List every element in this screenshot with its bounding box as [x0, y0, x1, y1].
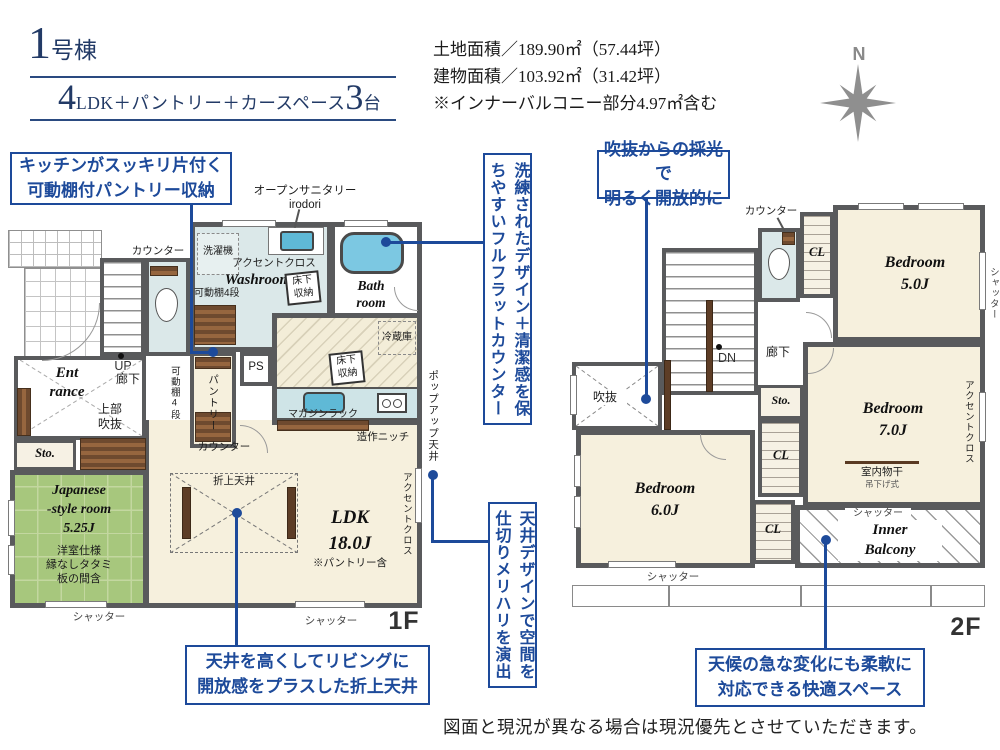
callout-dot-counter — [381, 237, 391, 247]
window — [344, 220, 388, 227]
bedroom7-label: Bedroom 7.0J — [838, 398, 948, 443]
disclaimer: 図面と現況が異なる場合は現況優先とさせていただきます。 — [443, 714, 999, 739]
bathroom-label: Bath room — [336, 278, 406, 312]
ceiling-beam-right — [287, 487, 296, 539]
stove-burner — [382, 399, 391, 408]
plan-ldk-count: 4 — [58, 79, 76, 115]
callout-line-counter — [390, 241, 483, 244]
callout-line-void — [645, 199, 648, 397]
stair-rail-right — [664, 360, 671, 430]
storage-label-1f: Sto. — [22, 446, 68, 462]
closet-top-label: CL — [802, 245, 832, 261]
building-title: 1 号棟 — [28, 20, 97, 66]
callout-ceiling-design: 天井デザインで空間を仕切りメリハリを演出 — [488, 502, 537, 688]
compass-star — [820, 64, 896, 142]
plan-car-count: 3 — [345, 79, 363, 115]
window — [858, 203, 904, 210]
stairs-1f — [100, 258, 145, 356]
callout-inner-balcony: 天候の急な変化にも柔軟に 対応できる快適スペース — [695, 648, 925, 707]
dn-dot — [716, 344, 722, 350]
storage-label-2f: Sto. — [763, 393, 799, 408]
roof-tick — [930, 585, 932, 607]
callout-dot-ceiling — [428, 470, 438, 480]
roof-tick — [668, 585, 670, 607]
callout-folded-ceiling: 天井を高くしてリビングに 開放感をプラスした折上天井 — [185, 645, 430, 705]
callout-void-light: 吹抜からの採光で 明るく開放的に — [597, 150, 730, 199]
bedroom5-label: Bedroom 5.0J — [860, 252, 970, 297]
indoor-drying-label: 室内物干 — [850, 466, 914, 479]
shutter-label-bedroom6: シャッター — [640, 571, 706, 584]
callout-line-pantry — [190, 205, 193, 353]
bedroom6-label: Bedroom 6.0J — [610, 478, 720, 523]
compass-north-label: N — [853, 44, 866, 64]
bedroom5-door-arc — [806, 312, 832, 338]
unit-number: 1 — [28, 20, 51, 66]
void-label: 吹抜 — [583, 390, 627, 405]
shutter-label-ldk: シャッター — [298, 615, 364, 628]
window — [574, 496, 581, 528]
floor2-label: 2F — [942, 612, 990, 643]
window — [574, 455, 581, 487]
magazine-rack-front — [277, 420, 369, 431]
folded-ceiling-label: 折上天井 — [204, 475, 264, 488]
magazine-rack-label: マガジンラック — [280, 409, 366, 422]
area-info: 土地面積／189.90㎡（57.44坪） 建物面積／103.92㎡（31.42坪… — [433, 36, 717, 117]
window — [979, 252, 986, 310]
entrance-label: Ent rance — [32, 364, 102, 402]
building-area: 建物面積／103.92㎡（31.42坪） — [433, 63, 717, 90]
window — [222, 220, 276, 227]
shutter-label-balcony: シャッター — [845, 508, 911, 521]
pantry-label: パントリー — [206, 368, 219, 438]
ldk-label: LDK 18.0J — [305, 505, 395, 556]
japanese-room-note: 洋室仕様 縁なしタタミ 板の間含 — [16, 545, 142, 586]
roof-tick — [800, 585, 802, 607]
window — [8, 500, 15, 536]
sanitary-sink — [280, 231, 314, 251]
closet-mid-label: CL — [766, 448, 796, 464]
bathtub — [340, 232, 404, 274]
callout-line-balcony — [824, 544, 827, 648]
compass-rose: N — [812, 36, 904, 148]
floorplan-page: 1 号棟 4 LDK＋パントリー＋カースペース 3 台 土地面積／189.90㎡… — [0, 0, 1000, 750]
title-divider-bottom — [30, 119, 396, 121]
drying-bar — [845, 461, 919, 464]
kitchen-stove — [377, 393, 407, 413]
callout-line-folded — [235, 517, 238, 645]
land-area: 土地面積／189.90㎡（57.44坪） — [433, 36, 717, 63]
ldk-note: ※パントリー含 — [298, 557, 402, 570]
counter-label-pantry: カウンター — [196, 441, 252, 454]
hanging-type-label: 吊下げ式 — [854, 479, 910, 490]
balcony-area-note: ※インナーバルコニー部分4.97㎡含む — [433, 90, 717, 117]
callout-line-ceiling-h — [431, 540, 488, 543]
shutter-label-japanese: シャッター — [66, 611, 132, 624]
inner-balcony-label: Inner Balcony — [838, 520, 942, 561]
open-sanitary-label: オープンサニタリー irodori — [245, 184, 365, 213]
window — [45, 601, 107, 608]
window — [918, 203, 964, 210]
niche-label: 造作ニッチ — [348, 431, 418, 444]
approach-tiles-upper — [8, 230, 102, 268]
accent-cloth-label-ldk: アクセントクロス — [400, 470, 412, 558]
window — [415, 468, 422, 523]
callout-pantry-storage: キッチンがスッキリ片付く 可動棚付パントリー収納 — [10, 152, 232, 205]
shutter-label-bedroom5: シャッター — [987, 262, 999, 324]
hallway-label-2f: 廊下 — [760, 345, 796, 360]
window — [979, 392, 986, 442]
washroom-shelf — [194, 305, 236, 345]
window — [295, 601, 365, 608]
window — [570, 375, 577, 415]
callout-dot-balcony — [821, 535, 831, 545]
callout-dot-void — [641, 394, 651, 404]
roof-outline — [572, 585, 985, 607]
popup-ceiling-label: ポップアップ天井 — [426, 358, 439, 474]
dn-label: DN — [712, 351, 742, 367]
shelf4-label-corridor: 可動棚4段 — [168, 362, 180, 424]
counter-label-2f: カウンター — [742, 205, 800, 218]
plan-tail: 台 — [363, 90, 381, 115]
plan-text: LDK＋パントリー＋カースペース — [76, 90, 345, 115]
japanese-room-label: Japanese -style room 5.25J — [16, 482, 142, 539]
shelf4-label-washroom: 可動棚4段 — [194, 288, 252, 301]
entrance-step — [17, 388, 31, 436]
stove-burner — [393, 399, 402, 408]
plan-summary: 4 LDK＋パントリー＋カースペース 3 台 — [58, 79, 381, 115]
closet-bottom-label: CL — [758, 522, 788, 538]
toilet-counter-1f — [150, 266, 178, 276]
toilet-counter-2f — [782, 232, 795, 245]
upper-void-label: 上部 吹抜 — [86, 402, 134, 432]
ps-label: PS — [244, 360, 268, 374]
ceiling-beam-left — [182, 487, 191, 539]
callout-flat-counter: 洗練されたデザイン＋清潔感を保ちやすいフルフラットカウンター — [483, 153, 532, 425]
floor1-label: 1F — [382, 606, 426, 637]
underfloor-storage-label-kitchen: 床下 収納 — [331, 354, 363, 382]
accent-cloth-label-washroom: アクセントクロス — [228, 257, 320, 270]
window — [608, 561, 676, 568]
stair-rail-left — [706, 300, 713, 392]
title-divider-top — [30, 76, 396, 78]
fridge-label: 冷蔵庫 — [378, 332, 416, 345]
accent-cloth-label-bedroom7: アクセントクロス — [962, 376, 974, 468]
hallway-label-1f: 廊下 — [112, 372, 144, 387]
counter-label-toilet-1f: カウンター — [130, 245, 186, 258]
window — [8, 545, 15, 575]
callout-line-ceiling-v — [431, 478, 434, 542]
unit-suffix: 号棟 — [51, 31, 97, 65]
wood-deck — [80, 438, 146, 470]
callout-dot-pantry — [208, 347, 218, 357]
underfloor-storage-label-washroom: 床下 収納 — [287, 274, 319, 302]
callout-dot-folded — [232, 508, 242, 518]
